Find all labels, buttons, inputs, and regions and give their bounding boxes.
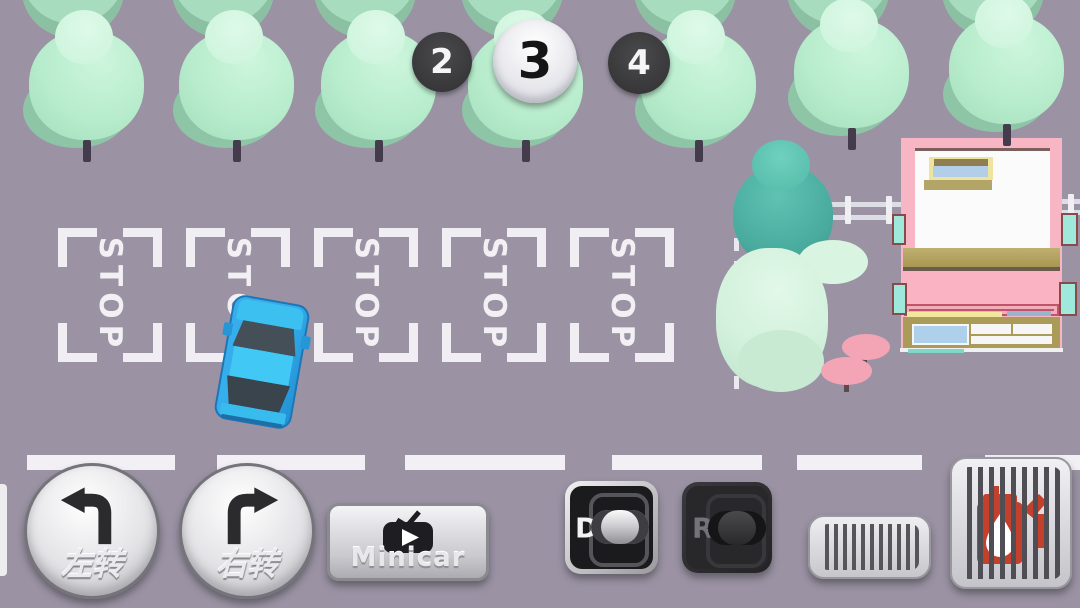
stop-marking: STOP bbox=[348, 237, 384, 354]
parking-spot-3: STOP bbox=[314, 228, 418, 362]
mint-tree bbox=[738, 330, 824, 392]
tree bbox=[23, 0, 153, 168]
gas-pedal[interactable] bbox=[950, 457, 1072, 589]
road-dash bbox=[405, 455, 565, 470]
minicar-label: Minicar bbox=[351, 543, 466, 573]
road-dash bbox=[797, 455, 922, 470]
screen-edge-marking bbox=[0, 484, 7, 576]
gear-drive-button[interactable]: D bbox=[565, 481, 658, 574]
level-badge-2: 2 bbox=[412, 32, 472, 92]
game-screen: 2 3 4 STOP STOP STOP STOP STOP bbox=[0, 0, 1080, 608]
left-turn-button[interactable]: 左转 bbox=[24, 463, 160, 599]
gear-reverse-button[interactable]: R bbox=[682, 482, 772, 573]
parking-spot-5: STOP bbox=[570, 228, 674, 362]
shop-window bbox=[912, 324, 969, 345]
parking-spot-4: STOP bbox=[442, 228, 546, 362]
fence-post bbox=[845, 196, 851, 224]
road-dash bbox=[612, 455, 762, 470]
tree bbox=[173, 0, 303, 168]
left-turn-label: 左转 bbox=[61, 539, 123, 584]
level-badge-3-current: 3 bbox=[493, 19, 577, 103]
stop-marking: STOP bbox=[476, 237, 512, 354]
minicar-video-button[interactable]: Minicar bbox=[327, 503, 489, 581]
shop-building bbox=[901, 138, 1062, 352]
stop-marking: STOP bbox=[92, 237, 128, 354]
turn-left-arrow-icon bbox=[55, 480, 129, 546]
right-turn-button[interactable]: 右转 bbox=[179, 463, 315, 599]
gear-knob bbox=[591, 510, 649, 544]
gear-knob bbox=[708, 511, 766, 545]
building-side-box bbox=[892, 214, 906, 245]
pink-mushroom bbox=[821, 357, 872, 385]
right-turn-label: 右转 bbox=[216, 539, 278, 584]
building-side-box bbox=[1059, 282, 1077, 316]
level-badge-4: 4 bbox=[608, 32, 670, 94]
tree bbox=[788, 0, 918, 156]
building-side-box bbox=[892, 283, 907, 315]
building-side-box bbox=[1061, 213, 1078, 246]
pedal-ribs bbox=[961, 467, 1061, 579]
brake-pedal[interactable] bbox=[808, 515, 931, 579]
pedal-ribs bbox=[820, 524, 919, 570]
tree bbox=[943, 0, 1073, 152]
car-mirror bbox=[300, 336, 311, 350]
shop-front bbox=[903, 317, 1060, 350]
parking-spot-1: STOP bbox=[58, 228, 162, 362]
turn-right-arrow-icon bbox=[210, 480, 284, 546]
stop-marking: STOP bbox=[604, 237, 640, 354]
